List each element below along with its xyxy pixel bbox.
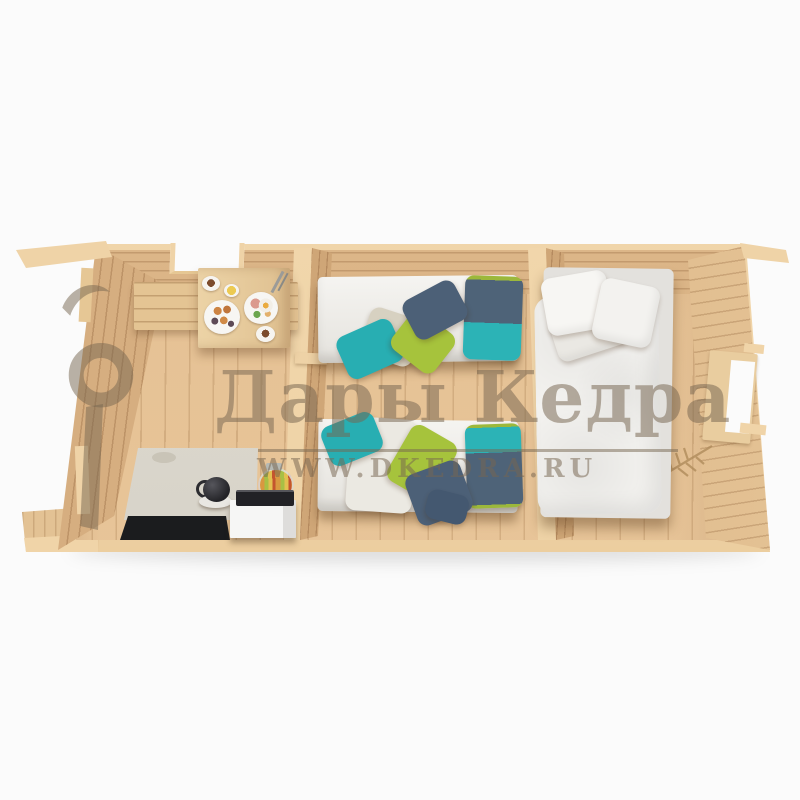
coffee-cup (202, 276, 220, 291)
porch-rail (75, 446, 90, 514)
breakfast-table (198, 268, 290, 348)
cooktop (236, 490, 294, 506)
window-sill-top (744, 343, 765, 354)
second-cup (256, 326, 275, 342)
plate-with-buns (204, 300, 240, 334)
cabin-render-scene: Дары Кедра WWW.DKEDRA.RU (0, 0, 800, 800)
fruit-jar-lid (266, 463, 282, 470)
plate-with-egg-and-ham (244, 292, 278, 324)
lemon-dish (224, 284, 239, 297)
single-bed-bottom-pillow (465, 423, 524, 509)
kettle (203, 477, 230, 502)
double-bed-pillow (590, 276, 662, 349)
single-bed-top-pillow (463, 275, 524, 361)
sink (152, 452, 176, 463)
